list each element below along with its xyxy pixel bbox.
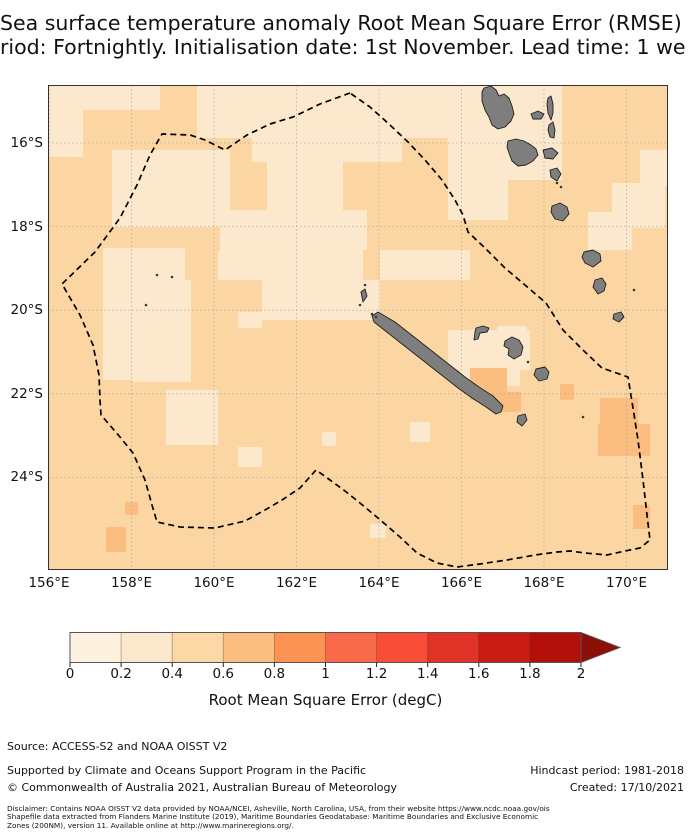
y-tick-label: 18°S: [0, 219, 43, 235]
rmse-patch-low: [322, 432, 336, 446]
colorbar-segment: [223, 633, 274, 663]
disclaimer-line-1: Disclaimer: Contains NOAA OISST V2 data …: [7, 805, 690, 813]
islet-speck: [375, 316, 378, 319]
islet-speck: [560, 186, 563, 189]
colorbar-segment: [121, 633, 172, 663]
rmse-patch-low: [220, 210, 367, 250]
colorbar-segment: [428, 633, 479, 663]
y-tick-label: 16°S: [0, 135, 43, 151]
rmse-patch-low: [410, 422, 430, 442]
colorbar-tick-label: 0.4: [147, 666, 197, 682]
rmse-patch-low: [238, 312, 262, 328]
rmse-patch-low: [238, 447, 262, 467]
map-plot: [48, 85, 668, 570]
islet-speck: [633, 289, 636, 292]
colorbar-segment: [326, 633, 377, 663]
colorbar-extend-arrow: [581, 633, 620, 663]
colorbar-segment: [274, 633, 325, 663]
colorbar-tick-label: 1.2: [352, 666, 402, 682]
rmse-patch-high: [600, 398, 638, 426]
rmse-patch-low: [166, 390, 218, 445]
colorbar-tick-label: 1.6: [454, 666, 504, 682]
colorbar-tick-label: 0.6: [198, 666, 248, 682]
y-tick-label: 20°S: [0, 302, 43, 318]
colorbar-segment: [530, 633, 581, 663]
figure-root: Sea surface temperature anomaly Root Mea…: [0, 0, 690, 839]
rmse-patch-low: [218, 250, 363, 280]
x-tick-label: 170°E: [603, 575, 651, 591]
disclaimer-text: Disclaimer: Contains NOAA OISST V2 data …: [7, 805, 690, 830]
rmse-patch-low: [112, 150, 230, 227]
islet-speck: [371, 313, 374, 316]
colorbar-tick-label: 0.2: [96, 666, 146, 682]
colorbar-segment: [377, 633, 428, 663]
disclaimer-line-2: Shapefile data extracted from Flanders M…: [7, 813, 690, 821]
rmse-patch-low: [370, 524, 386, 538]
created-date-text: Created: 17/10/2021: [570, 781, 684, 794]
rmse-patch-low: [133, 280, 191, 382]
rmse-patch-low: [197, 85, 469, 138]
islet-speck: [556, 182, 559, 185]
x-tick-label: 164°E: [355, 575, 403, 591]
colorbar-tick-label: 1.4: [403, 666, 453, 682]
colorbar-tick-label: 0.8: [249, 666, 299, 682]
islet-speck: [364, 284, 367, 287]
islet-speck: [582, 416, 585, 419]
source-text: Source: ACCESS-S2 and NOAA OISST V2: [7, 740, 227, 753]
colorbar-segment: [479, 633, 530, 663]
colorbar-tick-label: 1: [301, 666, 351, 682]
disclaimer-line-3: Zones (200NM), version 11. Available onl…: [7, 822, 690, 830]
colorbar-tick-label: 1.8: [505, 666, 555, 682]
islet-speck: [359, 304, 362, 307]
rmse-patch-low: [640, 150, 668, 186]
rmse-patch-low: [48, 85, 160, 110]
colorbar-segment: [172, 633, 223, 663]
islet-speck: [171, 276, 174, 279]
rmse-patch-low: [448, 180, 508, 220]
x-tick-label: 158°E: [108, 575, 156, 591]
colorbar-segment: [70, 633, 121, 663]
rmse-patch-low: [588, 212, 632, 250]
colorbar: [60, 628, 630, 670]
rmse-patch-low: [48, 110, 83, 157]
supported-by-text: Supported by Climate and Oceans Support …: [7, 764, 366, 777]
y-tick-label: 22°S: [0, 386, 43, 402]
x-tick-label: 166°E: [438, 575, 486, 591]
rmse-patch-low: [380, 250, 470, 280]
islet-speck: [145, 304, 148, 307]
copyright-text: © Commonwealth of Australia 2021, Austra…: [7, 781, 397, 794]
colorbar-tick-label: 2: [556, 666, 606, 682]
colorbar-label: Root Mean Square Error (degC): [0, 691, 651, 709]
rmse-patch-high: [560, 384, 574, 400]
x-tick-label: 168°E: [520, 575, 568, 591]
hindcast-period-text: Hindcast period: 1981-2018: [530, 764, 684, 777]
islet-speck: [527, 361, 530, 364]
figure-title-line2: riod: Fortnightly. Initialisation date: …: [0, 35, 690, 59]
y-tick-label: 24°S: [0, 469, 43, 485]
rmse-patch-low: [252, 136, 402, 162]
colorbar-tick-label: 0: [45, 666, 95, 682]
x-tick-label: 162°E: [273, 575, 321, 591]
rmse-patch-high: [598, 424, 650, 456]
x-tick-label: 156°E: [25, 575, 73, 591]
rmse-patch-high: [106, 527, 126, 552]
x-tick-label: 160°E: [190, 575, 238, 591]
figure-title-line1: Sea surface temperature anomaly Root Mea…: [0, 11, 690, 35]
islet-speck: [156, 274, 159, 277]
